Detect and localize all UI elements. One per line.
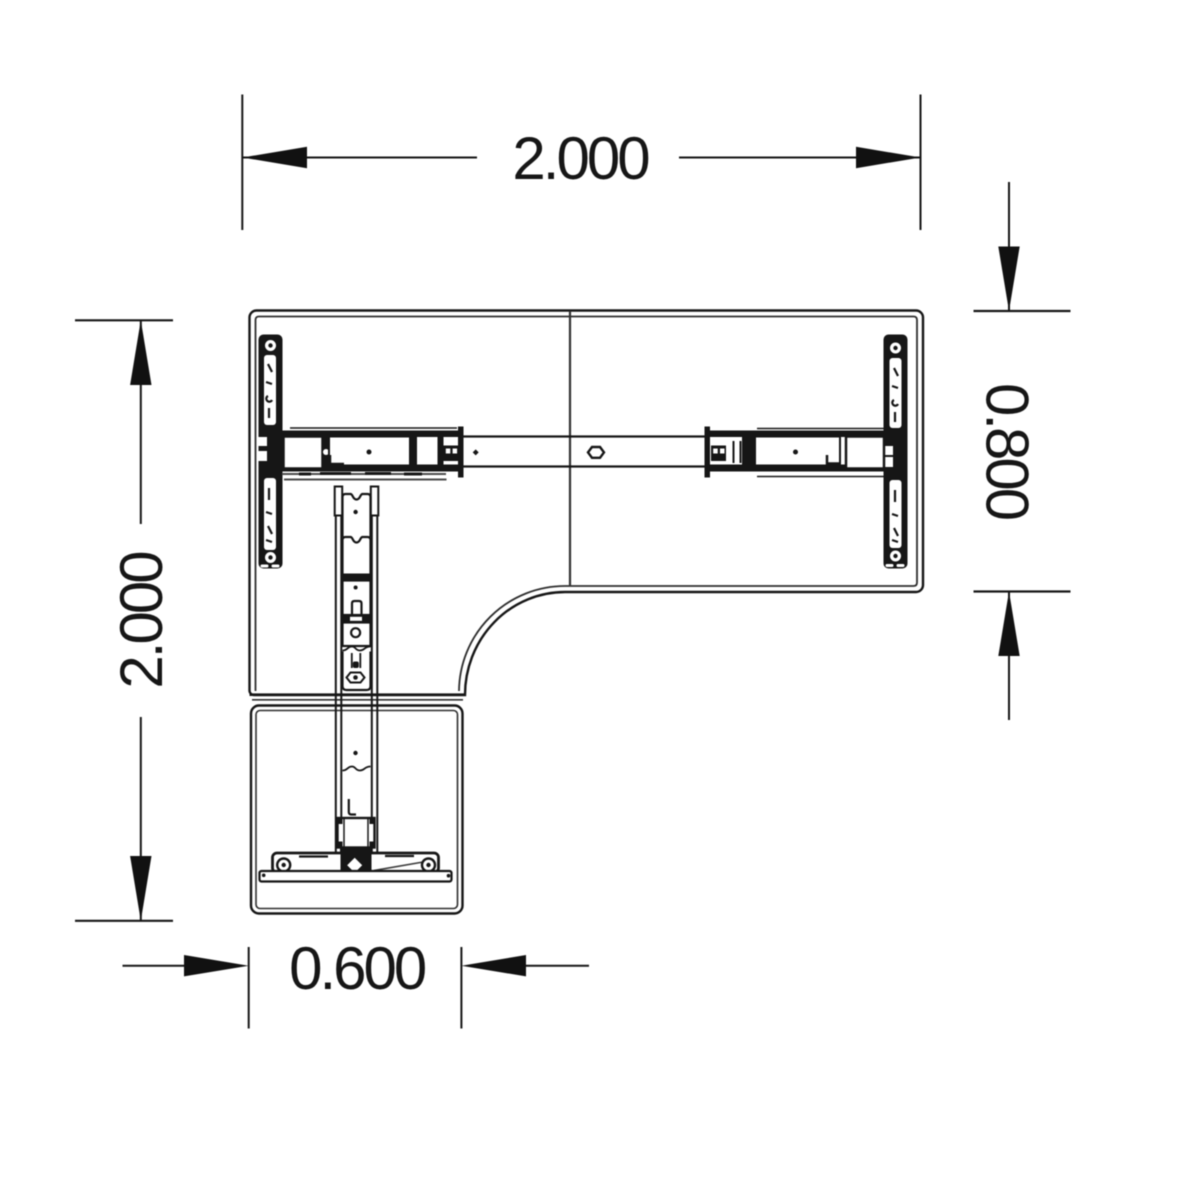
svg-text:2.000: 2.000: [512, 125, 649, 192]
svg-text:0.600: 0.600: [289, 935, 426, 1002]
svg-text:0.800: 0.800: [974, 383, 1041, 520]
svg-text:2.000: 2.000: [108, 552, 175, 689]
